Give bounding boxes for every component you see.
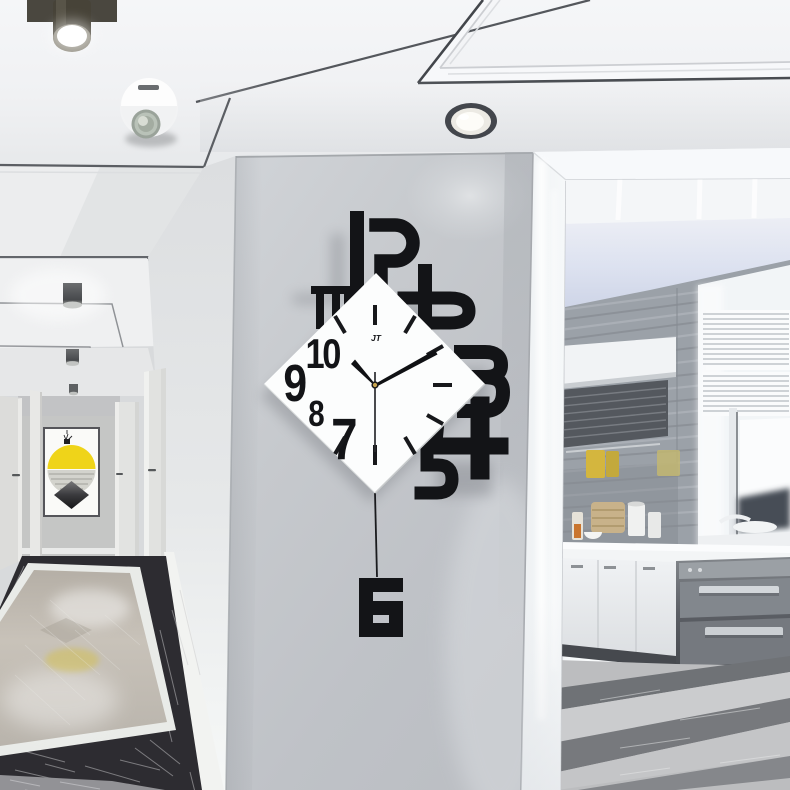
svg-text:JT: JT: [371, 333, 382, 343]
svg-text:9: 9: [283, 355, 307, 413]
svg-text:10: 10: [306, 331, 341, 378]
svg-text:8: 8: [308, 393, 324, 433]
